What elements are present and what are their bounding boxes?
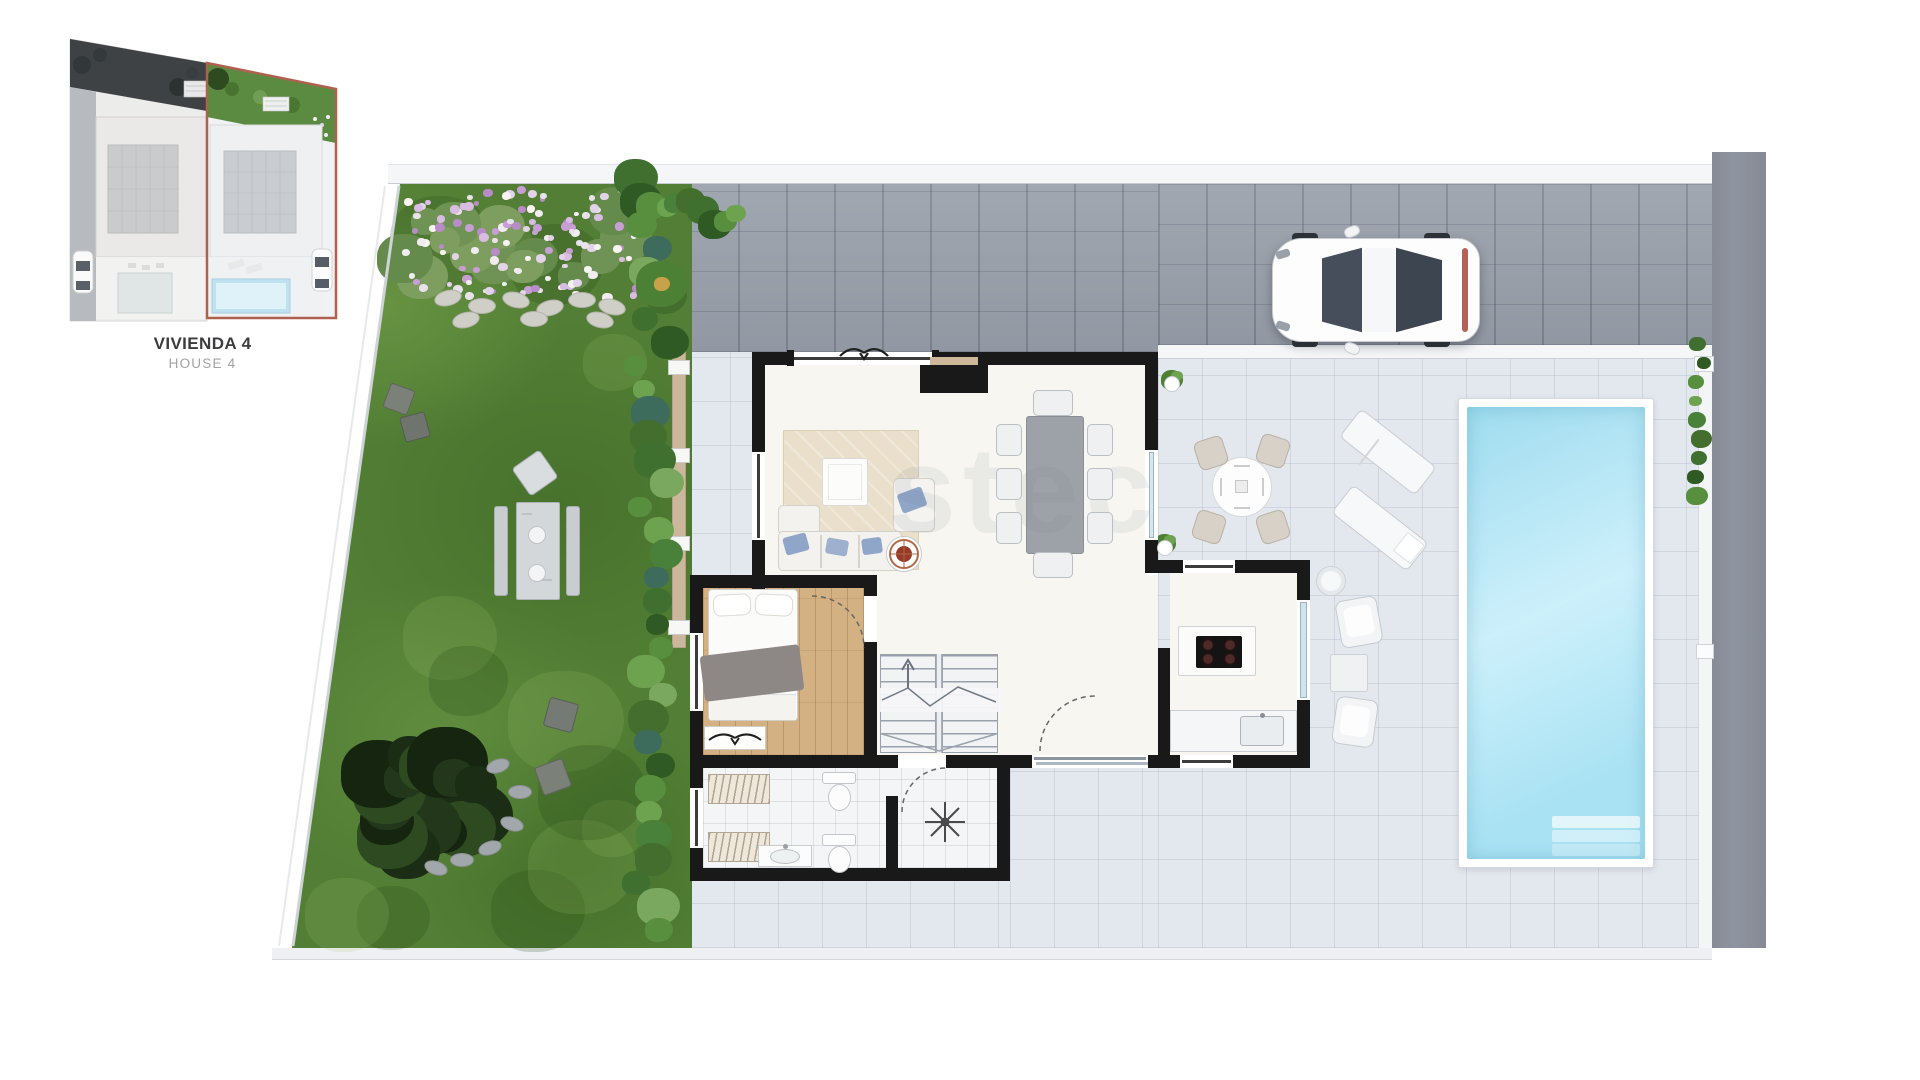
plant-pot	[1164, 376, 1180, 392]
sofa-pillow	[861, 537, 883, 556]
flower-dot	[626, 256, 631, 261]
car-rear-window	[1396, 246, 1442, 334]
flower-dot	[531, 285, 540, 293]
rock	[450, 853, 474, 867]
flower-dot	[419, 284, 428, 292]
flower-dot	[417, 238, 426, 246]
flower-dot	[613, 245, 622, 253]
toilet-bowl	[828, 784, 851, 811]
wardrobe	[708, 774, 770, 804]
pool-hedge-plant	[1691, 451, 1707, 465]
bed-pillow	[754, 593, 793, 617]
bedroom-west-window-glass	[695, 635, 698, 709]
garden-bench	[494, 506, 508, 596]
hedge-plant	[650, 468, 684, 498]
flower-dot	[466, 280, 472, 285]
flower-dot	[536, 254, 546, 262]
pool-hedge-plant	[1697, 357, 1712, 370]
stone	[520, 311, 548, 327]
floor-plan-canvas: stec	[0, 0, 1920, 1080]
flower-dot	[502, 192, 511, 200]
hedge-plant	[644, 567, 668, 588]
stone	[568, 292, 596, 308]
flower-dot	[473, 267, 480, 273]
wall-shower-divider	[886, 796, 898, 868]
bed-pillow	[712, 593, 751, 617]
inset-plot-highlighted	[207, 63, 336, 318]
inset-plot-left	[70, 39, 210, 321]
toilet-tank	[822, 772, 856, 784]
sink-basin	[770, 849, 800, 864]
bidet-bowl	[828, 846, 851, 873]
caption-secondary: HOUSE 4	[60, 356, 345, 371]
flower-dot	[450, 205, 460, 214]
flower-dot	[615, 222, 625, 231]
dining-chair	[1033, 390, 1073, 416]
caption-primary: VIVIENDA 4	[60, 334, 345, 354]
kitchen-north-window-glass	[1185, 565, 1233, 568]
car-taillight	[1462, 248, 1468, 332]
garden-plate	[528, 526, 546, 544]
flower-dot	[512, 222, 521, 230]
flower-dot	[483, 189, 492, 197]
patio-side-table	[1316, 566, 1346, 596]
rock	[508, 785, 532, 799]
wall-kitchen-west	[1158, 648, 1170, 755]
flower-dot	[589, 195, 595, 201]
flower-dot	[525, 256, 531, 261]
flower-dot	[502, 282, 507, 287]
dining-chair	[996, 424, 1022, 456]
bedroom-door-gap	[864, 596, 877, 642]
flower-dot	[491, 248, 500, 256]
pool-hedge-plant	[1687, 470, 1704, 485]
bathroom-door-gap	[898, 755, 946, 768]
kitchen-sink	[1240, 716, 1284, 746]
overhang-plant	[726, 205, 745, 222]
hedge-plant	[634, 730, 661, 754]
dining-area-floor	[877, 575, 1158, 652]
pool-step	[1552, 844, 1640, 856]
hedge-plant	[646, 614, 669, 634]
flower-dot	[619, 257, 624, 262]
cooktop	[1196, 636, 1242, 668]
kitchen-east-glass	[1300, 602, 1307, 698]
flower-dot	[437, 215, 446, 223]
wall-bedroom-north	[690, 575, 877, 588]
flower-dot	[402, 249, 410, 256]
hedge-plant	[650, 539, 683, 568]
coffee-table-top	[828, 464, 862, 500]
hedge-plant	[645, 918, 673, 943]
sofa-cushion-seam	[858, 535, 860, 568]
patio-table-center	[1235, 480, 1248, 493]
pool-hedge-plant	[1691, 430, 1711, 448]
kitchen-south-window-glass	[1182, 760, 1231, 763]
patio-square-table	[1330, 654, 1368, 692]
flower-dot	[460, 203, 468, 210]
pool-hedge-plant	[1689, 337, 1705, 351]
flower-dot	[540, 193, 546, 199]
hedge-plant	[643, 588, 673, 614]
stairs-flight-up	[880, 654, 936, 753]
flower-dot	[413, 213, 420, 219]
flower-dot	[492, 238, 498, 244]
sliding-door-glass	[1034, 757, 1146, 760]
stone	[450, 309, 481, 331]
car-windshield	[1322, 246, 1362, 334]
sofa-cushion-seam	[820, 535, 822, 568]
garden-plate	[528, 564, 546, 582]
garden-bench	[566, 506, 580, 596]
dining-chair	[1033, 552, 1073, 578]
flower-dot	[527, 205, 535, 212]
flower-dot	[573, 279, 582, 287]
inset-site-plan	[60, 25, 345, 325]
pool-water	[1467, 407, 1645, 859]
hedge-plant	[651, 326, 689, 360]
flower-dot	[560, 283, 567, 289]
dining-chair	[1087, 468, 1113, 500]
pool-step	[1552, 830, 1640, 842]
flower-dot	[485, 287, 494, 295]
garden-table	[516, 502, 560, 600]
car-roof	[1362, 248, 1396, 332]
flower-dot	[447, 282, 452, 286]
pool-hedge-plant	[1688, 412, 1706, 428]
wall-bathroom-east	[997, 768, 1010, 881]
pool-hedge-plant	[1686, 487, 1707, 506]
flower-dot	[474, 201, 479, 206]
patio-armchair-cushion	[1343, 604, 1376, 638]
flower-dot	[453, 219, 462, 227]
flower-dot	[582, 212, 589, 218]
flower-dot	[465, 224, 474, 232]
dresser	[704, 726, 766, 750]
hedge-plant	[632, 307, 658, 330]
north-window-glass	[792, 357, 933, 360]
flower-dot	[600, 193, 608, 200]
flower-dot	[518, 206, 527, 214]
hedge-plant	[635, 775, 666, 803]
watermark: stec	[888, 420, 1160, 560]
flower-dot	[588, 271, 598, 280]
hedge-plant	[628, 497, 651, 518]
flower-dot	[562, 264, 568, 269]
dining-chair	[996, 512, 1022, 544]
flower-dot	[517, 186, 526, 194]
dining-chair	[1087, 424, 1113, 456]
west-living-window-glass	[757, 454, 760, 538]
flower-dot	[581, 242, 589, 249]
stairs-flight-down	[942, 654, 998, 753]
patio-armchair-cushion	[1339, 704, 1371, 738]
car	[1272, 238, 1480, 342]
inset-caption: VIVIENDA 4 HOUSE 4	[60, 334, 345, 371]
flower-dot	[594, 214, 603, 222]
sliding-door-glass	[1036, 762, 1148, 765]
flower-dot	[467, 195, 473, 200]
flower-dot	[594, 244, 600, 250]
bidet-tank	[822, 834, 856, 846]
flower-dot	[528, 190, 538, 198]
window-jamb	[787, 350, 794, 366]
dining-chair	[996, 468, 1022, 500]
tv-unit-shelf	[930, 357, 978, 365]
kitchen-faucet	[1260, 713, 1265, 718]
flower-dot	[574, 212, 579, 216]
flower-dot	[535, 210, 543, 217]
wall-bathroom-south	[690, 868, 1010, 881]
bathroom-west-window-glass	[695, 790, 698, 846]
flower-dot	[412, 228, 418, 233]
grass-patch	[429, 646, 508, 716]
sink-tap	[783, 844, 788, 849]
stairs-spine	[936, 654, 942, 753]
rock	[422, 858, 449, 879]
dining-chair	[1087, 512, 1113, 544]
pool-hedge-plant	[1688, 375, 1704, 389]
tv-unit	[920, 365, 988, 393]
pool-hedge-plant	[1689, 396, 1701, 407]
pool-step	[1552, 816, 1640, 828]
